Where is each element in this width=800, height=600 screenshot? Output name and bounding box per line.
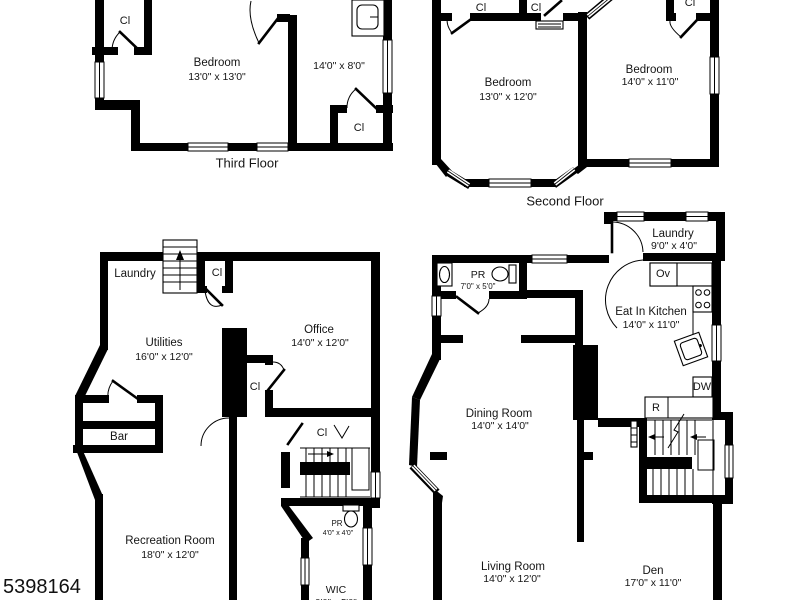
- closet-label: Cl: [476, 2, 486, 14]
- room-dims-bedroom-left: 13'0" x 12'0": [479, 91, 537, 103]
- room-dims-office: 14'0" x 12'0": [291, 337, 349, 349]
- closet-label: Cl: [317, 427, 327, 439]
- room-dims-powder: 4'0" x 4'0": [323, 530, 354, 537]
- room-label-recreation: Recreation Room: [125, 535, 214, 547]
- room-dims-recreation: 18'0" x 12'0": [141, 549, 199, 561]
- toilet-icon: [343, 505, 359, 527]
- room-label-kitchen: Eat In Kitchen: [615, 306, 687, 318]
- oven-label: Ov: [656, 268, 671, 280]
- closet-label: Cl: [531, 2, 541, 14]
- room-dims-bedroom-right: 14'0" x 11'0": [622, 76, 679, 88]
- room-label-bedroom: Bedroom: [194, 57, 241, 69]
- room-label-powder: PR: [331, 519, 342, 528]
- room-label-office: Office: [304, 324, 334, 336]
- refrigerator-label: R: [652, 402, 660, 414]
- room-dims-dining: 14'0" x 14'0": [471, 420, 529, 432]
- room-label-laundry: Laundry: [114, 268, 156, 280]
- first-floor-plan: Laundry 9'0" x 4'0" PR 7'0" x 5'0" Ov Ea…: [409, 212, 733, 600]
- room-label-powder: PR: [471, 269, 486, 281]
- room-label-wic: WIC: [326, 584, 347, 596]
- closet-label: Cl: [120, 15, 130, 27]
- stairs-up-icon: [163, 240, 197, 293]
- room-dims-utilities: 16'0" x 12'0": [135, 351, 193, 363]
- radiator-icon: [631, 421, 637, 447]
- third-floor-plan: Cl Bedroom 13'0" x 13'0" 14'0" x 8'0" Cl…: [92, 0, 393, 170]
- walls: [73, 252, 380, 600]
- floorplan-drawing: Cl Bedroom 13'0" x 13'0" 14'0" x 8'0" Cl…: [0, 0, 800, 600]
- walls: [432, 0, 719, 187]
- room-dims-bonus: 14'0" x 8'0": [313, 60, 365, 72]
- room-label-laundry: Laundry: [652, 228, 694, 240]
- room-dims-powder: 7'0" x 5'0": [461, 282, 496, 291]
- room-dims-den: 17'0" x 11'0": [625, 577, 682, 589]
- room-label-bar: Bar: [110, 431, 128, 443]
- room-dims-bedroom: 13'0" x 13'0": [188, 71, 246, 83]
- floorplan-page: Cl Bedroom 13'0" x 13'0" 14'0" x 8'0" Cl…: [0, 0, 800, 600]
- room-dims-living: 14'0" x 12'0": [483, 573, 541, 585]
- room-label-utilities: Utilities: [145, 337, 182, 349]
- dishwasher-label: DW: [693, 381, 712, 393]
- second-floor-plan: Cl Cl Cl Bedroom 13'0" x 12'0" Bedroom 1…: [432, 0, 719, 208]
- stairs-down-icon: [300, 448, 370, 497]
- floor-title-third: Third Floor: [216, 155, 280, 170]
- closet-label: Cl: [354, 122, 364, 134]
- room-label-bedroom-left: Bedroom: [485, 77, 532, 89]
- kitchen-fixtures: [645, 263, 713, 418]
- lower-level-plan: Laundry Cl Utilities 16'0" x 12'0" Offic…: [73, 240, 380, 600]
- bathroom-sink-icon: [352, 0, 384, 36]
- photo-id: 5398164: [3, 576, 81, 599]
- closet-label: Cl: [685, 0, 695, 9]
- stove-icon: [693, 286, 712, 312]
- toilet-icon: [509, 265, 516, 283]
- room-label-den: Den: [642, 565, 663, 577]
- room-label-dining: Dining Room: [466, 408, 532, 420]
- kitchen-sink-icon: [674, 332, 707, 365]
- radiator-icon: [536, 21, 563, 29]
- room-dims-laundry: 9'0" x 4'0": [651, 240, 697, 252]
- room-dims-kitchen: 14'0" x 11'0": [623, 319, 680, 331]
- room-label-living: Living Room: [481, 561, 545, 573]
- floor-title-second: Second Floor: [526, 193, 604, 208]
- room-label-bedroom-right: Bedroom: [626, 64, 673, 76]
- closet-label: Cl: [212, 267, 222, 279]
- closet-label: Cl: [250, 381, 260, 393]
